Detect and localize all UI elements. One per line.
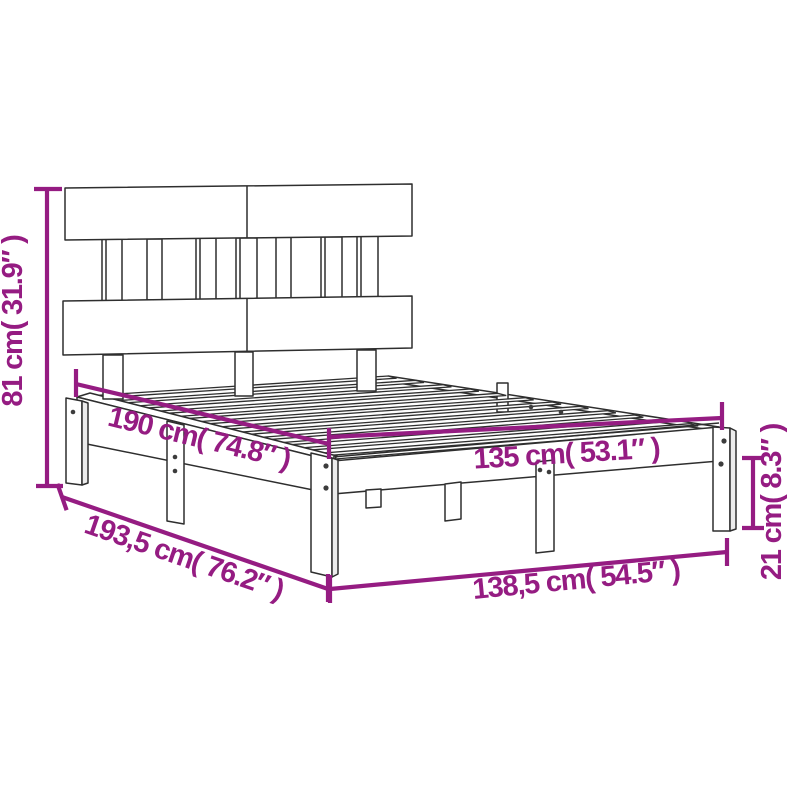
headboard-support bbox=[235, 352, 253, 396]
headboard-support bbox=[357, 350, 376, 391]
center-support-leg bbox=[366, 489, 381, 508]
foot-left-leg bbox=[311, 453, 338, 577]
bed-frame-diagram: 81 cm( 31.9″ ) 190 cm( 74.8″ ) 135 cm( 5… bbox=[0, 0, 800, 800]
dimension-frame-height: 21 cm( 8.3″ ) bbox=[742, 423, 788, 580]
dimension-label-headboard-height: 81 cm( 31.9″ ) bbox=[0, 235, 29, 407]
headboard-lower-board bbox=[63, 296, 412, 355]
headboard-slats bbox=[102, 236, 378, 301]
dimension-headboard-height: 81 cm( 31.9″ ) bbox=[0, 189, 63, 486]
headboard-top-board bbox=[65, 184, 412, 240]
foot-mid-leg bbox=[536, 460, 554, 553]
dimension-frame-width-outer: 138,5 cm( 54.5″ ) bbox=[330, 538, 727, 606]
dimension-label-frame-width-outer: 138,5 cm( 54.5″ ) bbox=[471, 554, 682, 606]
diagram-canvas: 81 cm( 31.9″ ) 190 cm( 74.8″ ) 135 cm( 5… bbox=[0, 0, 800, 800]
dimension-label-frame-height: 21 cm( 8.3″ ) bbox=[756, 423, 788, 580]
dimension-frame-length-outer: 193,5 cm( 76.2″ ) bbox=[57, 484, 328, 607]
bed-frame-drawing bbox=[63, 184, 736, 577]
center-support-leg bbox=[445, 482, 461, 521]
headboard bbox=[63, 184, 412, 399]
head-left-leg bbox=[66, 398, 88, 485]
